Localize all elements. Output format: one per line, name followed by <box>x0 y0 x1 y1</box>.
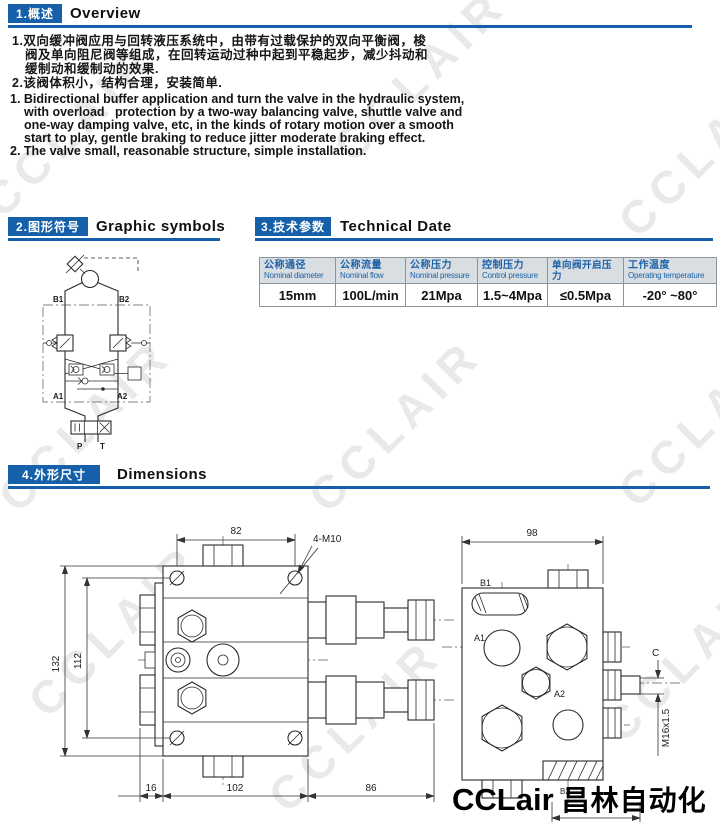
datasheet-page: CCLAIR CCLAIR CCLAIR CCLAIR CCLAIR CCLAI… <box>0 0 720 830</box>
table-header-cell: 公称通径 Nominal diameter <box>260 258 336 284</box>
dim-16: 16 <box>145 783 157 794</box>
value-operating-temperature: -20° ~80° <box>624 284 716 306</box>
value-opening-pressure: ≤0.5Mpa <box>548 284 624 306</box>
brand-logo: CCLair 昌林自动化 <box>452 779 707 819</box>
shuttle-valve <box>82 378 88 384</box>
section4-chip: 4.外形尺寸 <box>8 465 100 484</box>
header-en: Nominal pressure <box>410 271 474 280</box>
header-cn: 公称压力 <box>410 260 474 271</box>
a2-port <box>553 710 583 740</box>
hex-plug-top <box>203 545 243 566</box>
port-label-a1: A1 <box>474 633 485 643</box>
header-en: Operating temperature <box>628 271 713 280</box>
hydraulic-schematic: B1 B2 A1 A2 P T <box>25 245 215 455</box>
pilot-line <box>84 258 138 271</box>
section2-chip: 2.图形符号 <box>8 217 88 236</box>
port-label-b1: B1 <box>480 578 491 588</box>
dim-102: 102 <box>227 783 244 794</box>
header-cn: 公称流量 <box>340 260 402 271</box>
side-view: 98 B1 A1 A2 B2 C M16x1.5 <box>442 528 680 822</box>
valve-boundary-box <box>43 305 150 402</box>
front-view: 82 4-M10 132 112 16 102 86 <box>51 526 454 802</box>
port-label-b1: B1 <box>53 295 64 304</box>
section1-rule <box>8 25 692 28</box>
port-label-b2: B2 <box>119 295 130 304</box>
brand-logo-cjk: 昌林自动化 <box>562 779 707 819</box>
section1-title: Overview <box>70 5 141 22</box>
overview-cn-line: 2.该阀体积小，结构合理，安装简单. <box>12 76 428 90</box>
overview-cn-line: 阀及单向阻尼阀等组成，在回转运动过种中起到平稳起步，减少抖动和 <box>12 48 428 62</box>
section4-rule <box>8 486 710 489</box>
table-value-row: 15mm 100L/min 21Mpa 1.5~4Mpa ≤0.5Mpa -20… <box>260 284 716 306</box>
check-valve-right <box>100 364 114 375</box>
dim-width-82: 82 <box>230 526 242 537</box>
section3-title: Technical Date <box>340 218 452 235</box>
port-label-a2: A2 <box>117 392 128 401</box>
overview-en-line: 2. The valve small, reasonable structure… <box>10 145 464 158</box>
header-en: Control pressure <box>482 271 544 280</box>
header-cn: 工作温度 <box>628 260 713 271</box>
overview-cn-text: 1.双向缓冲阀应用与回转液压系统中，由带有过载保护的双向平衡阀，梭 阀及单向阻尼… <box>12 34 428 90</box>
table-header-cell: 工作温度 Operating temperature <box>624 258 716 284</box>
hex-plug-bottom <box>203 756 243 777</box>
table-header-cell: 单向阀开启压力 <box>548 258 624 284</box>
section4-title: Dimensions <box>117 466 207 483</box>
header-cn: 单向阀开启压力 <box>552 260 620 282</box>
technical-table: 公称通径 Nominal diameter 公称流量 Nominal flow … <box>259 257 717 307</box>
table-header-cell: 公称流量 Nominal flow <box>336 258 406 284</box>
section3-chip: 3.技术参数 <box>255 217 331 236</box>
cartridge-nut <box>408 680 434 720</box>
overview-cn-line: 1.双向缓冲阀应用与回转液压系统中，由带有过载保护的双向平衡阀，梭 <box>12 34 428 48</box>
port-label-a2: A2 <box>554 689 565 699</box>
overview-en-text: 1. Bidirectional buffer application and … <box>10 93 464 158</box>
round-port <box>207 644 239 676</box>
pilot-port <box>166 648 190 672</box>
header-cn: 公称通径 <box>264 260 332 271</box>
table-header-cell: 公称压力 Nominal pressure <box>406 258 478 284</box>
section2-title: Graphic symbols <box>96 218 225 235</box>
a1-port <box>484 630 520 666</box>
header-cn: 控制压力 <box>482 260 544 271</box>
section3-rule <box>255 238 713 241</box>
cartridge-nut <box>408 600 434 640</box>
check-valve-left <box>69 364 83 375</box>
dim-86: 86 <box>365 783 377 794</box>
brand-logo-latin: CCLair <box>452 782 554 818</box>
table-header-row: 公称通径 Nominal diameter 公称流量 Nominal flow … <box>260 258 716 284</box>
value-nominal-pressure: 21Mpa <box>406 284 478 306</box>
hex-plug-top <box>548 570 588 588</box>
value-nominal-diameter: 15mm <box>260 284 336 306</box>
header-en: Nominal diameter <box>264 271 332 280</box>
value-control-pressure: 1.5~4Mpa <box>478 284 548 306</box>
dim-width-98: 98 <box>526 528 538 539</box>
bolt-callout-4-m10: 4-M10 <box>313 534 342 545</box>
port-label-p: P <box>77 442 83 451</box>
relief-valve <box>128 367 141 380</box>
stud <box>621 676 640 694</box>
header-en: Nominal flow <box>340 271 402 280</box>
dim-height-132: 132 <box>51 655 62 672</box>
bolt-hole <box>288 571 302 585</box>
dim-label-c: C <box>652 648 659 659</box>
port-label-a1: A1 <box>53 392 64 401</box>
port-label-t: T <box>100 442 105 451</box>
value-nominal-flow: 100L/min <box>336 284 406 306</box>
dim-height-112: 112 <box>73 653 84 669</box>
thread-label-m16: M16x1.5 <box>661 708 672 747</box>
section1-chip: 1.概述 <box>8 4 62 23</box>
overview-cn-line: 缓制动和缓制动的效果. <box>12 62 428 76</box>
section2-rule <box>8 238 220 241</box>
table-header-cell: 控制压力 Control pressure <box>478 258 548 284</box>
